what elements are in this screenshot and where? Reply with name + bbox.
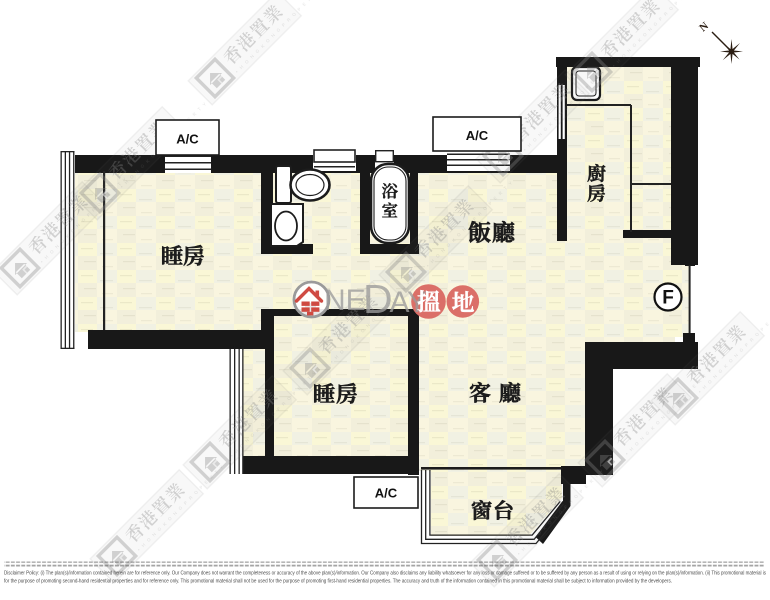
svg-text:Y: Y: [407, 286, 427, 319]
svg-text:A/C: A/C: [375, 486, 398, 501]
svg-text:A/C: A/C: [466, 128, 489, 143]
svg-text:NE: NE: [324, 284, 366, 317]
svg-text:D: D: [363, 276, 393, 322]
svg-text:for the purpose of promoting s: for the purpose of promoting second-hand…: [4, 579, 672, 585]
svg-text:Disclaimer Policy: (i) The pla: Disclaimer Policy: (i) The plan(s)/infor…: [4, 571, 766, 577]
svg-text:A/C: A/C: [176, 132, 199, 147]
svg-text:F: F: [662, 288, 674, 309]
